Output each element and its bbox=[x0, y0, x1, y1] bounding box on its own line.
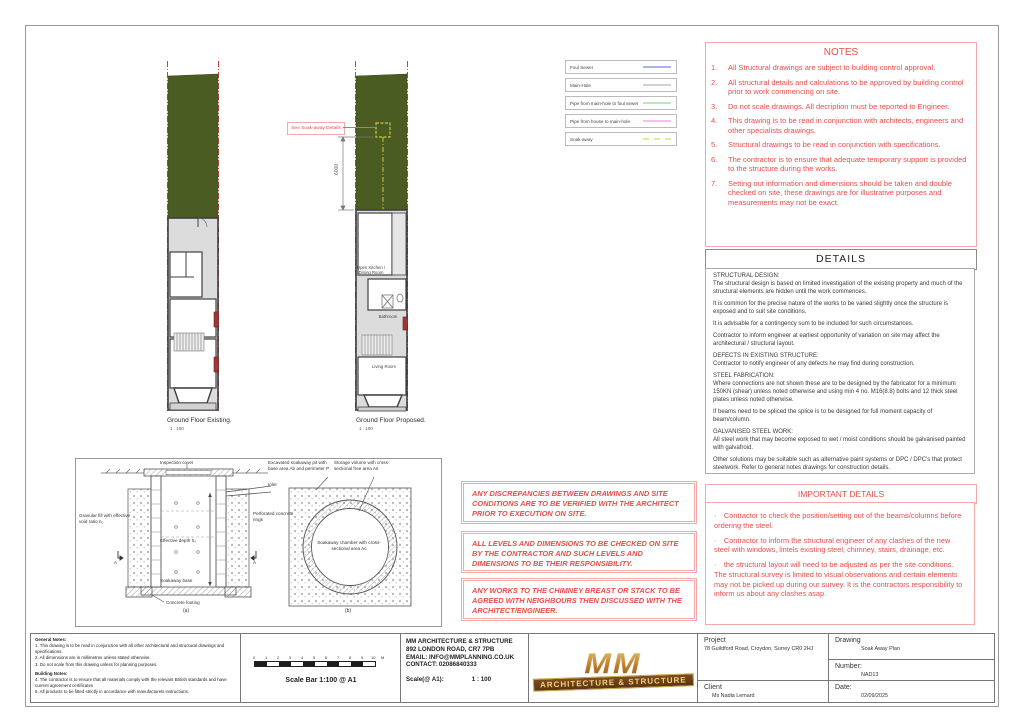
label-excavated-pit: Excavated soakaway pit with base area Ab… bbox=[268, 460, 330, 471]
label-granular-fill: Granular fill with effective void ratio … bbox=[79, 513, 135, 524]
note-item: 1.All Structural drawings are subject to… bbox=[711, 63, 968, 73]
details-panel: STRUCTURAL DESIGN: The structural design… bbox=[705, 268, 975, 474]
details-paragraph: STEEL FABRICATION: Where connections are… bbox=[713, 373, 967, 404]
client-cell: Client Ms Nadia Lemard bbox=[697, 680, 829, 703]
logo-cell: MM ARCHITECTURE & STRUCTURE bbox=[528, 633, 698, 703]
caption-a: (a) bbox=[183, 608, 189, 614]
details-paragraph: Other solutions may be suitable such as … bbox=[713, 457, 967, 473]
legend-item: Pipe from main-hole to foul sewer bbox=[565, 96, 677, 110]
warning-levels: ALL LEVELS AND DIMENSIONS TO BE CHECKED … bbox=[461, 531, 697, 573]
date-label: Date: bbox=[835, 684, 994, 691]
client-label: Client bbox=[704, 684, 828, 691]
dimension-text: 6000 bbox=[334, 155, 340, 175]
scale-bar-caption: Scale Bar 1:100 @ A1 bbox=[241, 677, 401, 684]
warning-chimney: ANY WORKS TO THE CHIMNEY BREAST OR STACK… bbox=[461, 578, 697, 621]
legend-item: Soak-away bbox=[565, 132, 677, 146]
date-cell: Date: 02/09/2025 bbox=[828, 680, 995, 703]
details-paragraph: It is advisable for a contingency sum to… bbox=[713, 321, 967, 329]
client-value: Ms Nadia Lemard bbox=[712, 693, 828, 699]
notes-title: NOTES bbox=[706, 47, 976, 58]
label-effective-depth: Effective depth h₀ bbox=[160, 538, 215, 544]
general-note: 3. Do not scale from this drawing unless… bbox=[35, 662, 236, 668]
legend-label: Foul Sewer bbox=[570, 65, 643, 70]
details-paragraph: Contractor to inform engineer at earlies… bbox=[713, 333, 967, 349]
drawing-label: Drawing bbox=[835, 637, 994, 644]
label-concrete-footing: Concrete footing bbox=[166, 600, 200, 606]
callout-leader-line bbox=[343, 127, 377, 128]
legend-line-swatch bbox=[643, 84, 671, 86]
label-perforated-rings: Perforated concrete rings bbox=[253, 511, 299, 522]
scale-bar-segments bbox=[254, 661, 376, 667]
legend-label: Main-Hole bbox=[570, 83, 643, 88]
proposed-plan-title: Ground Floor Proposed. bbox=[356, 417, 426, 424]
firm-address: 892 LONDON ROAD, CR7 7PB bbox=[406, 646, 523, 654]
legend-label: Pipe from main-hole to foul sewer bbox=[570, 101, 643, 106]
legend-label: Pipe from house to main-hole bbox=[570, 119, 643, 124]
building-note: 4. The contractor is to ensure that all … bbox=[35, 677, 236, 689]
caption-b: (b) bbox=[345, 608, 351, 614]
note-item: 6.The contractor is to ensure that adequ… bbox=[711, 155, 968, 174]
project-cell: Project 78 Guildford Road, Croydon, Surr… bbox=[697, 633, 829, 681]
drawing-sheet: See Soak-away Details 6000 Open Kitchen … bbox=[0, 0, 1024, 723]
soakaway-detail-box bbox=[75, 458, 442, 627]
firm-email: EMAIL: INFO@MMPLANNING.CO.UK bbox=[406, 654, 523, 662]
label-soakaway-chamber: Soakaway chamber with cross-sectional ar… bbox=[317, 540, 381, 551]
details-paragraph: GALVANISED STEEL WORK: All steel work th… bbox=[713, 429, 967, 452]
number-value: NAD13 bbox=[861, 672, 994, 678]
existing-floor-plan bbox=[140, 55, 260, 415]
proposed-floor-plan bbox=[330, 55, 460, 415]
legend-line-swatch bbox=[643, 102, 671, 104]
details-title: DETAILS bbox=[705, 249, 977, 270]
general-notes-cell: General Notes: 1. This drawing is to be … bbox=[30, 633, 241, 703]
firm-info-cell: MM ARCHITECTURE & STRUCTURE 892 LONDON R… bbox=[400, 633, 529, 703]
firm-contact: CONTACT: 02086840333 bbox=[406, 661, 523, 669]
note-item: 5.Structural drawings to be read in conj… bbox=[711, 140, 968, 150]
number-label: Number: bbox=[835, 663, 994, 670]
firm-name: MM ARCHITECTURE & STRUCTURE bbox=[406, 638, 523, 646]
legend-label: Soak-away bbox=[570, 137, 643, 142]
mm-logo: MM bbox=[584, 649, 641, 676]
label-storage-volume: Storage volume with cross-sectional free… bbox=[334, 460, 394, 471]
label-section-a-left: A bbox=[114, 560, 117, 566]
scalebar-cell: 0 1 2 3 4 5 6 7 8 9 10 M Scale Bar 1:100… bbox=[240, 633, 401, 703]
number-cell: Number: NAD13 bbox=[828, 659, 995, 681]
scale-bar-ticks: 0 1 2 3 4 5 6 7 8 9 10 M bbox=[254, 655, 390, 661]
note-item: 4.This drawing is to be read in conjunct… bbox=[711, 116, 968, 135]
legend-item: Foul Sewer bbox=[565, 60, 677, 74]
note-item: 3.Do not scale drawings. All decription … bbox=[711, 102, 968, 112]
room-label-bathroom: Bathroom bbox=[374, 314, 402, 319]
label-inspection-cover: Inspection cover bbox=[160, 460, 193, 466]
legend-line-swatch bbox=[643, 138, 671, 140]
details-paragraph: DEFECTS IN EXISTING STRUCTURE: Contracto… bbox=[713, 353, 967, 369]
general-note: 1. This drawing is to be read in conjunc… bbox=[35, 643, 236, 655]
building-note: 5. All products to be fitted strictly in… bbox=[35, 689, 236, 695]
important-bullet: · the structural layout will need to be … bbox=[714, 560, 966, 599]
important-bullet: · Contractor to inform the structural en… bbox=[714, 536, 966, 556]
note-item: 7.Setting out information and dimensions… bbox=[711, 179, 968, 208]
drawing-value: Soak Away Plan bbox=[861, 646, 994, 652]
legend-item: Main-Hole bbox=[565, 78, 677, 92]
legend-line-swatch bbox=[643, 66, 671, 68]
details-paragraph: It is common for the precise nature of t… bbox=[713, 301, 967, 317]
room-label-kitchen: Open Kitchen / Dining Room bbox=[354, 265, 388, 275]
important-details-title: IMPORTANT DETAILS bbox=[705, 484, 977, 504]
legend-line-swatch bbox=[643, 120, 671, 122]
warning-discrepancies: ANY DISCREPANCIES BETWEEN DRAWINGS AND S… bbox=[461, 481, 697, 524]
soakaway-diagram bbox=[76, 459, 441, 626]
mm-logo-banner: ARCHITECTURE & STRUCTURE bbox=[532, 673, 693, 692]
details-paragraph: STRUCTURAL DESIGN: The structural design… bbox=[713, 273, 967, 296]
project-label: Project bbox=[704, 637, 828, 644]
see-soakaway-callout: See Soak-away Details bbox=[287, 122, 345, 135]
firm-scale-label: Scale(@ A1): bbox=[406, 676, 444, 684]
firm-scale-value: 1 : 100 bbox=[472, 676, 491, 684]
important-details-panel: · Contractor to check the position/setti… bbox=[705, 502, 975, 625]
project-value: 78 Guildford Road, Croydon, Surrey CR0 2… bbox=[704, 646, 828, 652]
scale-bar: 0 1 2 3 4 5 6 7 8 9 10 M bbox=[254, 655, 390, 667]
label-inlet: Inlet bbox=[268, 482, 277, 488]
existing-plan-title: Ground Floor Existing. bbox=[167, 417, 232, 424]
label-section-a-right: A bbox=[253, 560, 256, 566]
room-label-living: Living Room bbox=[370, 364, 398, 369]
legend-item: Pipe from house to main-hole bbox=[565, 114, 677, 128]
drawing-cell: Drawing Soak Away Plan bbox=[828, 633, 995, 660]
important-bullet: · Contractor to check the position/setti… bbox=[714, 511, 966, 531]
existing-plan-scale: 1 : 100 bbox=[170, 426, 184, 431]
label-soakaway-base: Soakaway base bbox=[160, 578, 192, 584]
note-item: 2.All structural details and calculation… bbox=[711, 78, 968, 97]
details-paragraph: If beams need to be spliced the splice i… bbox=[713, 409, 967, 425]
date-value: 02/09/2025 bbox=[861, 693, 994, 699]
notes-panel: NOTES 1.All Structural drawings are subj… bbox=[705, 42, 977, 247]
proposed-plan-scale: 1 : 100 bbox=[359, 426, 373, 431]
